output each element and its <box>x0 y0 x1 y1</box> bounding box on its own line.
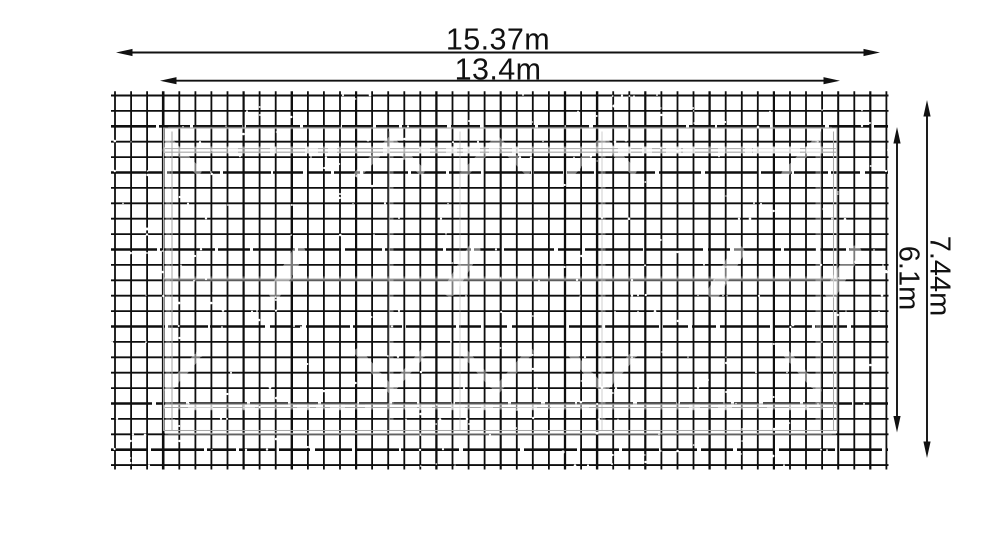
svg-text:13.4m: 13.4m <box>455 53 542 87</box>
svg-text:6.1m: 6.1m <box>893 246 925 310</box>
svg-text:15.37m: 15.37m <box>446 23 550 57</box>
svg-text:7.44m: 7.44m <box>924 236 956 317</box>
